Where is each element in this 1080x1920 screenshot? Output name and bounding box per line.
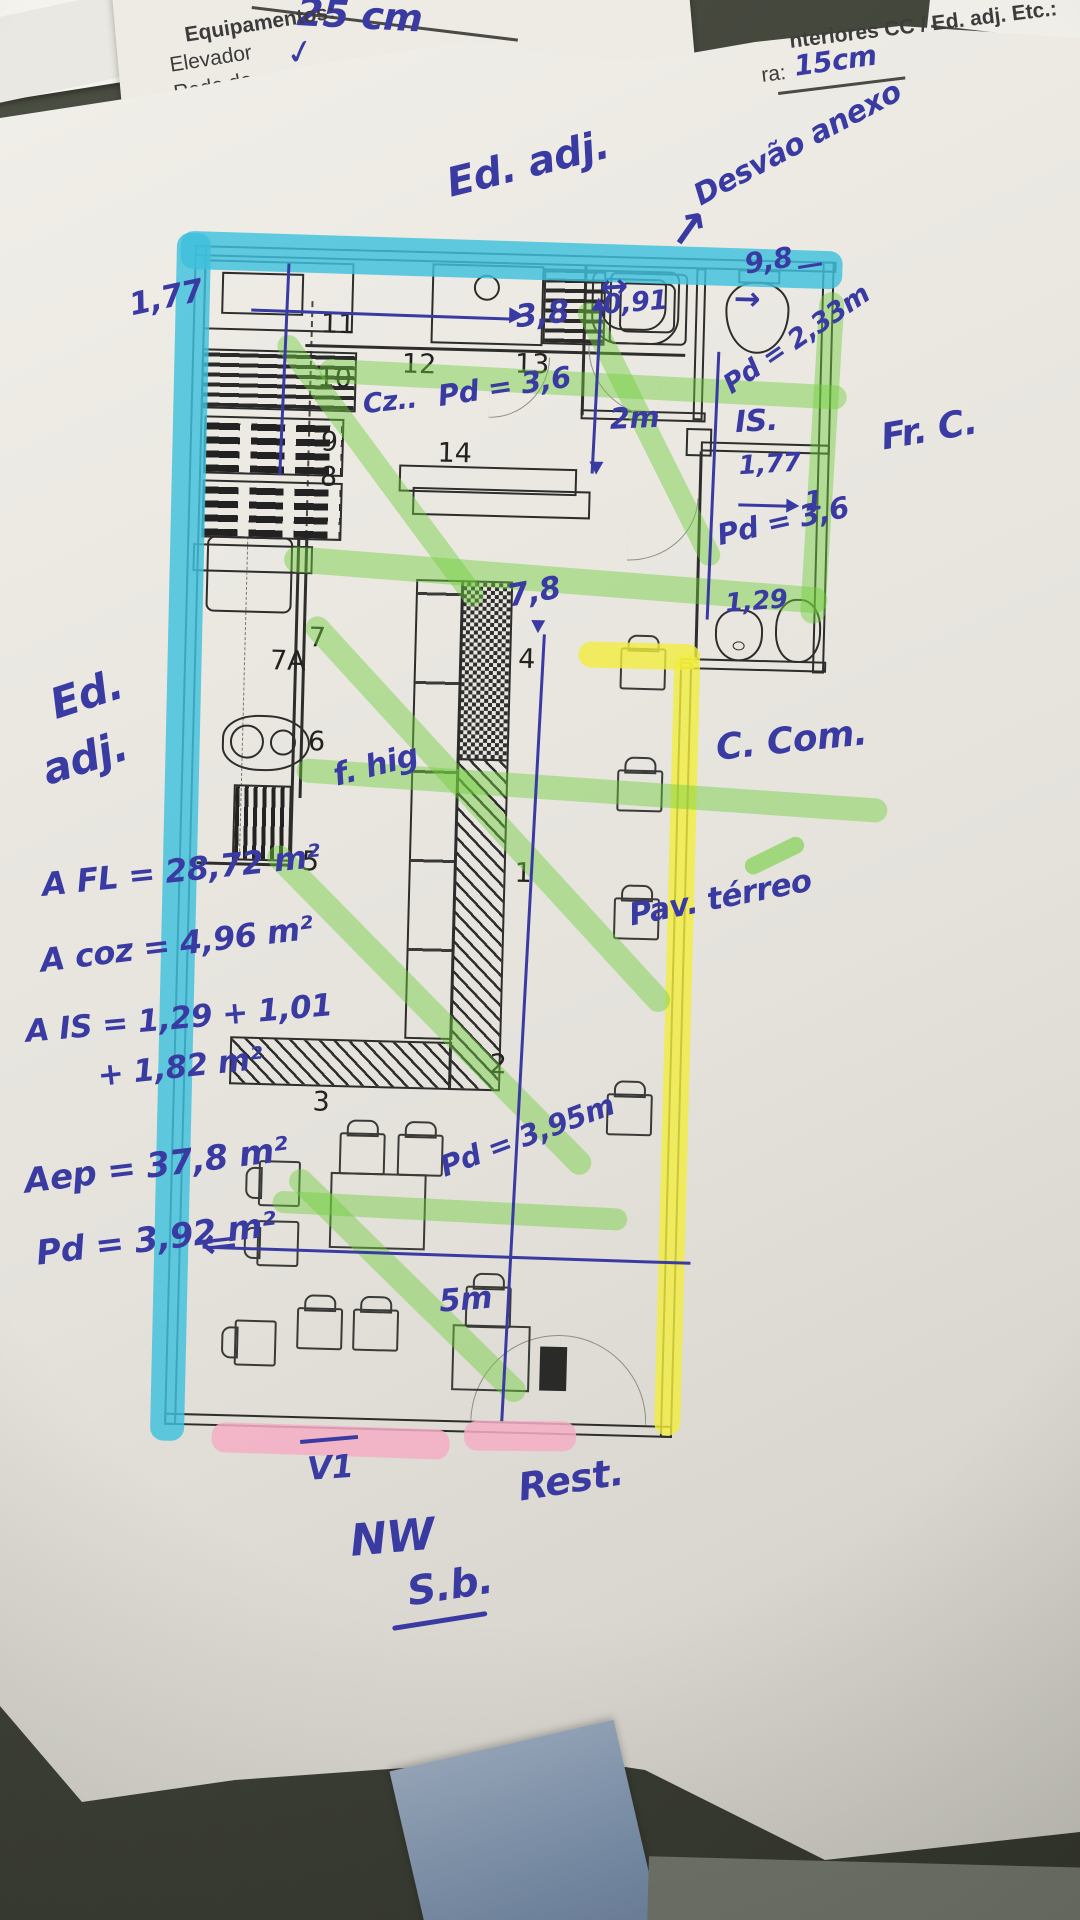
label-nw: NW: [348, 1509, 436, 1567]
chair: [339, 1119, 390, 1176]
label-v1: V1: [306, 1447, 355, 1488]
dim-pd-36-is: Pd = 3,6: [714, 490, 852, 552]
fridge-7: [205, 535, 293, 613]
bidet-a-dot: [733, 641, 745, 650]
room-label-7a: 7A: [270, 645, 306, 677]
dim-3-8: 3,8: [514, 293, 571, 335]
pen-7-8-head: [531, 620, 545, 633]
room-label-9: 9: [320, 426, 338, 457]
chair-seat: [352, 1309, 399, 1352]
arrow-right-wc: →: [733, 279, 760, 318]
chair: [352, 1296, 403, 1353]
chair: [296, 1294, 347, 1351]
dim-2m: 2m: [609, 400, 660, 436]
room-label-6: 6: [308, 726, 326, 757]
highlight-yellow-corner: [578, 641, 701, 670]
pen-2m-head-top: [591, 297, 605, 310]
note-cz: Cz..: [361, 383, 418, 420]
door-jamb-block: [539, 1346, 567, 1391]
dim-1-29: 1,29: [724, 584, 788, 619]
island-checker-column: [457, 580, 514, 761]
table-surface-strip: [647, 1856, 1080, 1920]
door-arc-exit-right: [558, 1335, 648, 1425]
room-label-8: 8: [320, 461, 338, 492]
dim-5m: 5m: [438, 1280, 494, 1320]
chair-seat: [296, 1307, 343, 1350]
photo-of-annotated-floor-plan: 25 cm Equipamentos: Elevador ✓ Rede de n…: [0, 0, 1080, 1920]
room-label-3: 3: [312, 1086, 330, 1117]
room-label-14: 14: [437, 437, 472, 469]
chair-seat: [339, 1132, 386, 1175]
highlight-pink-bottom-right: [464, 1421, 576, 1452]
highlight-green-10: [272, 1190, 628, 1231]
sheet-right-label: ra:: [760, 61, 787, 88]
label-is: IS.: [734, 403, 779, 441]
pen-2m-head-bottom: [589, 461, 603, 474]
serving-counter-b: [412, 487, 591, 520]
chair: [221, 1315, 278, 1366]
room-label-4: 4: [518, 644, 536, 675]
chair-seat: [234, 1319, 277, 1366]
dim-1-77-is: 1,77: [738, 448, 802, 482]
